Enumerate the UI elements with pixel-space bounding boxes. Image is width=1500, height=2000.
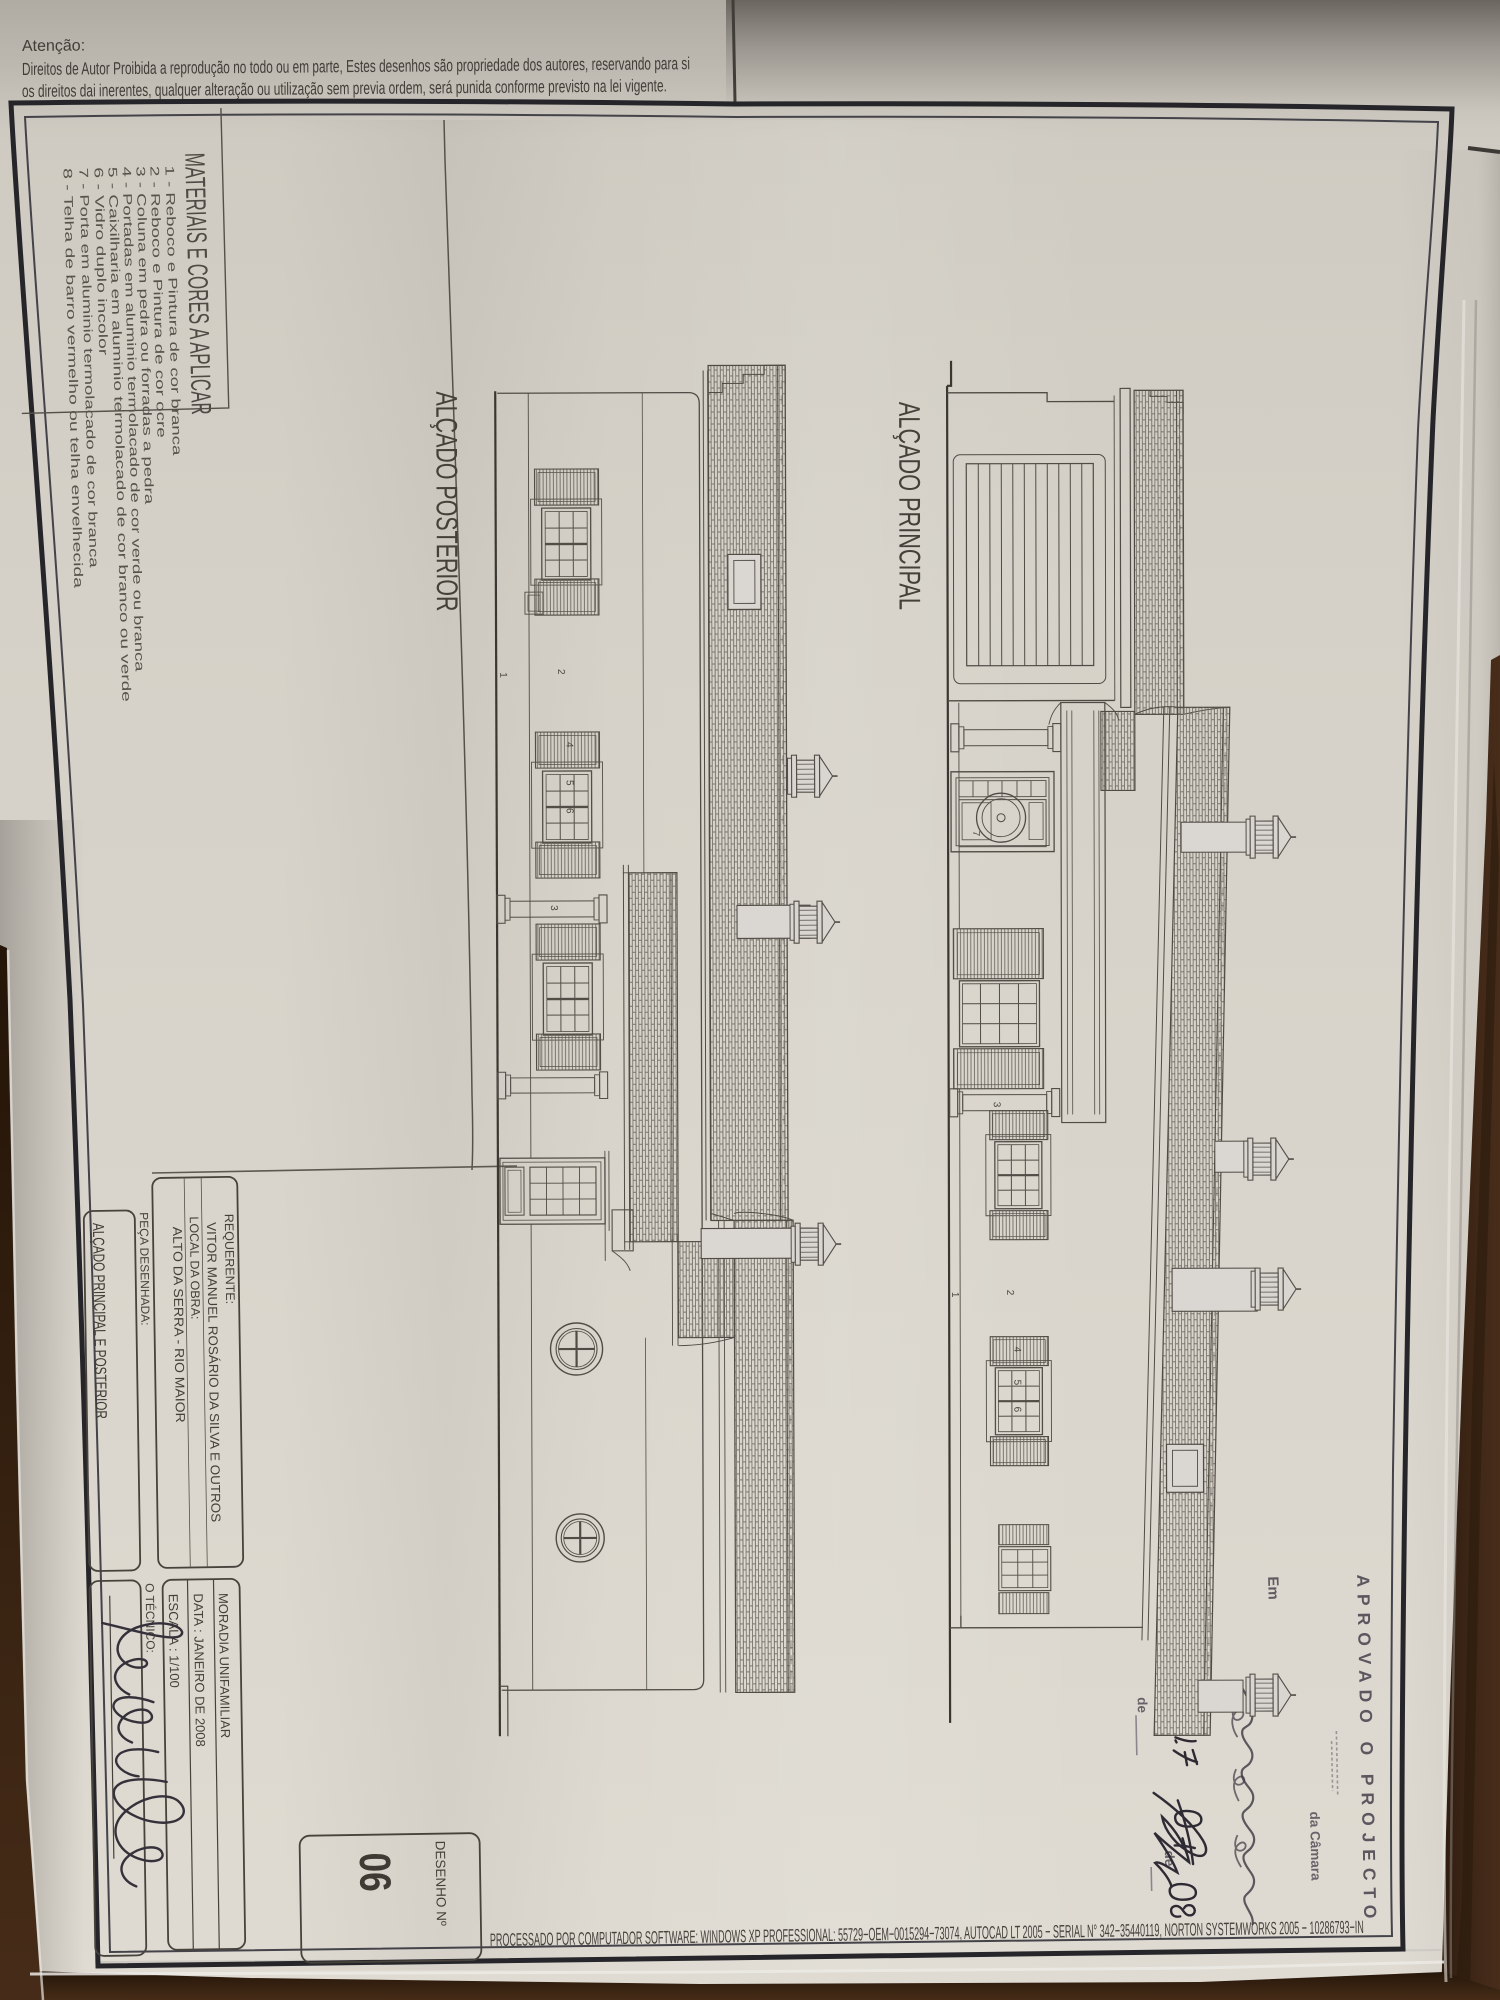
svg-text:Em: Em [1264, 1576, 1281, 1600]
svg-text:2: 2 [555, 669, 566, 675]
svg-text:O TÉCNICO:: O TÉCNICO: [143, 1583, 159, 1653]
svg-text:6: 6 [1011, 1407, 1022, 1413]
svg-text:06: 06 [350, 1852, 400, 1892]
svg-text:MORADIA UNIFAMILIAR: MORADIA UNIFAMILIAR [216, 1593, 233, 1738]
svg-text:DESENHO Nº: DESENHO Nº [433, 1841, 449, 1926]
svg-text:3: 3 [548, 905, 559, 911]
svg-text:1: 1 [949, 1292, 960, 1298]
svg-text:2: 2 [1004, 1290, 1015, 1296]
svg-text:DATA : JANEIRO DE 2008: DATA : JANEIRO DE 2008 [191, 1593, 208, 1747]
svg-text:LOCAL DA OBRA:: LOCAL DA OBRA: [187, 1216, 203, 1319]
svg-text:ALÇADO PRINCIPAL: ALÇADO PRINCIPAL [892, 402, 925, 610]
svg-text:REQUERENTE:: REQUERENTE: [222, 1214, 237, 1305]
svg-text:3: 3 [991, 1102, 1002, 1108]
svg-text:da Câmara: da Câmara [1307, 1811, 1323, 1881]
svg-text:5: 5 [1011, 1380, 1022, 1386]
svg-text:5: 5 [564, 780, 575, 786]
svg-text:PEÇA DESENHADA:: PEÇA DESENHADA: [137, 1212, 153, 1326]
svg-text:ALÇADO PRINCIPAL E POSTERIOR: ALÇADO PRINCIPAL E POSTERIOR [89, 1223, 109, 1419]
svg-text:4: 4 [563, 742, 574, 748]
svg-text:4: 4 [1011, 1347, 1022, 1353]
svg-text:ESCALA : 1/100: ESCALA : 1/100 [166, 1594, 182, 1688]
svg-text:Atenção:: Atenção: [22, 37, 85, 55]
svg-text:1: 1 [497, 672, 508, 678]
svg-text:7: 7 [970, 831, 981, 837]
svg-text:6: 6 [564, 808, 575, 814]
svg-text:de: de [1135, 1697, 1150, 1714]
svg-text:ALÇADO POSTERIOR: ALÇADO POSTERIOR [429, 391, 463, 611]
